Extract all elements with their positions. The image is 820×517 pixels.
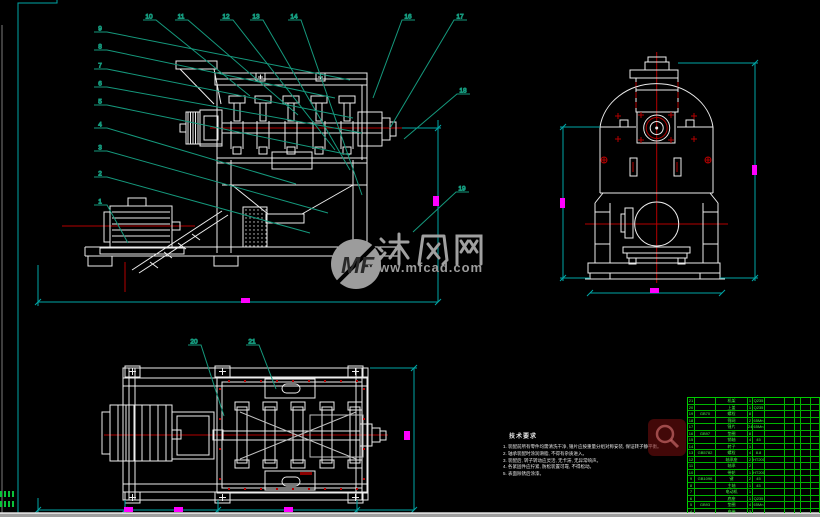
balloon-number: 9: [98, 26, 102, 33]
balloon-number: 3: [98, 145, 102, 152]
balloon-leader: [373, 20, 415, 98]
balloon-number: 7: [98, 63, 102, 70]
note-line: 2. 轴承装配时涂润滑脂, 不得有杂质进入。: [503, 451, 668, 458]
corner-info-text: [0, 491, 16, 497]
end-view: [585, 52, 728, 283]
dimension-value-blob: [284, 507, 293, 512]
balloon-number: 14: [290, 14, 298, 21]
dimension-value-blob: [241, 298, 250, 303]
balloon-leader: [390, 20, 467, 128]
dimension-value-blob: [433, 196, 439, 206]
balloon-number: 11: [178, 14, 185, 21]
dimension-value-blob: [174, 507, 183, 512]
note-line: 1. 装配前所有零件均需清洗干净, 锤片应按重量分组对称安装, 保证转子静平衡。: [503, 444, 668, 451]
balloon-number: 1: [98, 199, 102, 206]
balloon-number: 16: [404, 14, 412, 21]
balloon-leader: [94, 151, 328, 213]
balloon-number: 5: [98, 99, 102, 106]
dimension-value-blob: [650, 288, 659, 293]
magnifier-icon: [657, 426, 678, 447]
notes-title: 技术要求: [509, 431, 668, 440]
balloon-leader: [175, 20, 298, 115]
balloon-number: 2: [98, 171, 102, 178]
watermark: MF www.mfcad.com: [331, 234, 483, 289]
balloon-number: 21: [248, 339, 256, 346]
balloon-leader: [404, 94, 470, 139]
balloon-number: 13: [252, 14, 260, 21]
balloon-number: 4: [98, 122, 102, 129]
note-line: 5. 表面除锈后涂漆。: [503, 471, 668, 478]
cad-viewport[interactable]: 9876543211011121314161718192021 MF www.m…: [0, 0, 820, 517]
red-mark: [300, 472, 312, 475]
dimension-value-blob: [560, 198, 565, 208]
drawing-frame: [2, 0, 57, 514]
dimension-value-blob: [752, 165, 757, 175]
bom-table: 21机架1Q23520上盖1Q23519GB70螺栓818筛网265Mn17锤片…: [687, 397, 820, 515]
balloon-number: 6: [98, 81, 102, 88]
technical-notes: 技术要求 1. 装配前所有零件均需清洗干净, 锤片应按重量分组对称安装, 保证转…: [503, 431, 668, 478]
watermark-url: www.mfcad.com: [367, 260, 483, 275]
zoom-badge[interactable]: [648, 419, 686, 456]
balloon-number: 8: [98, 44, 102, 51]
end-view-dimensions: [560, 60, 758, 296]
balloon-number: 12: [222, 14, 230, 21]
dimension-value-blob: [404, 431, 410, 440]
balloon-number: 17: [456, 14, 464, 21]
balloon-leader: [188, 345, 224, 416]
balloon-callouts: 9876543211011121314161718192021: [94, 14, 470, 417]
balloon-number: 19: [458, 186, 466, 193]
balloon-leader: [413, 192, 469, 232]
balloon-number: 18: [459, 88, 467, 95]
balloon-number: 20: [190, 339, 198, 346]
corner-info-text: [0, 501, 16, 507]
top-view: [102, 366, 388, 503]
balloon-number: 10: [145, 14, 153, 21]
dimension-value-blob: [124, 507, 133, 512]
perforated-guard: [243, 207, 267, 247]
